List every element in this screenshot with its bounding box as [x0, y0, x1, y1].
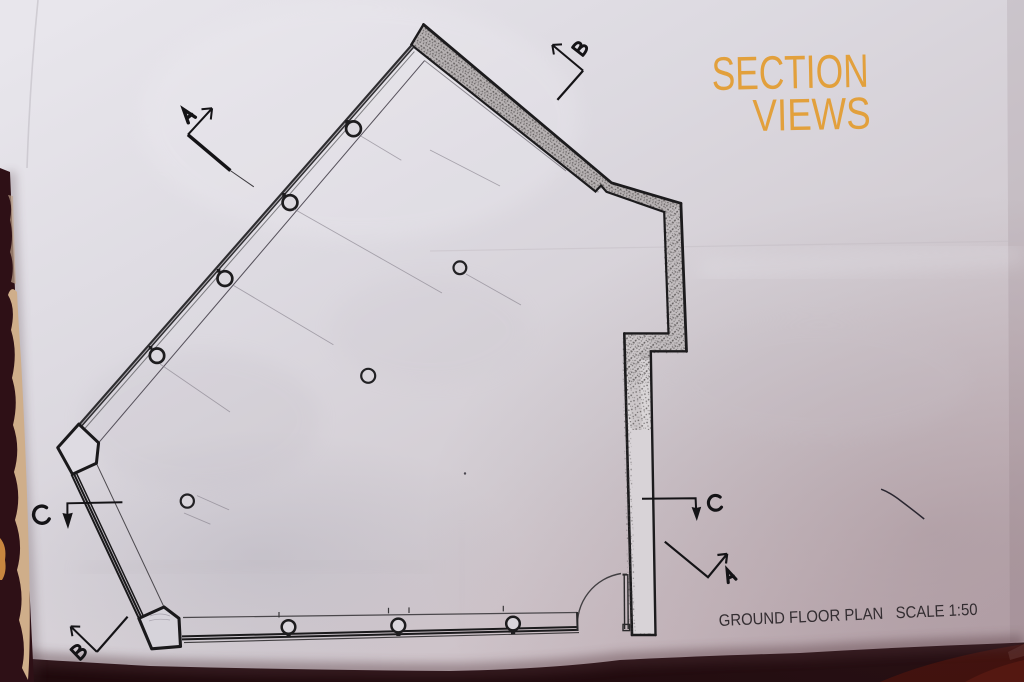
- svg-text:VIEWS: VIEWS: [752, 88, 871, 141]
